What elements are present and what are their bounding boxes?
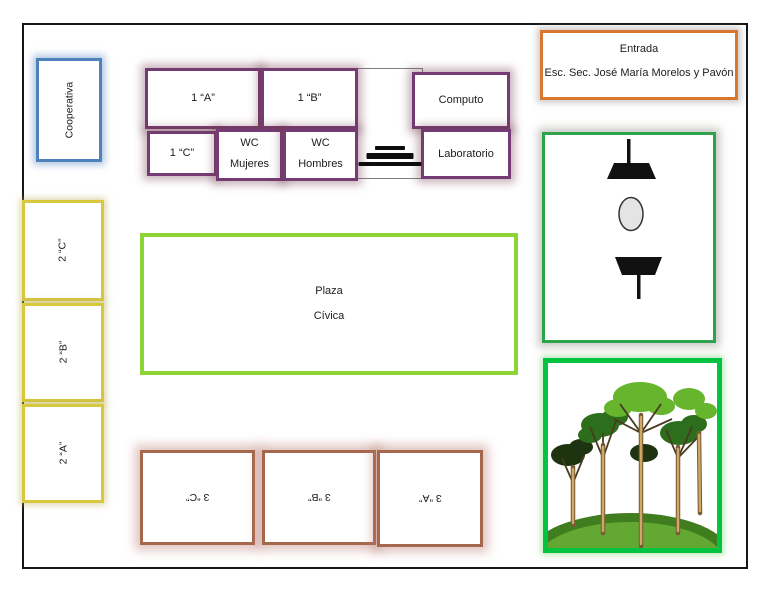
plaza-civica-box: Plaza Cívica [140, 233, 518, 375]
classroom-3a-box: 3 “A” [377, 450, 483, 547]
classroom-1c-box: 1 “C” [147, 131, 217, 176]
stairs-step-top [375, 146, 405, 150]
classroom-2c-box: 2 “C” [22, 200, 104, 301]
computo-label: Computo [439, 94, 484, 107]
wc-mujeres-line2: Mujeres [230, 158, 269, 171]
garden-box [543, 358, 722, 553]
classroom-1b-label: 1 “B” [298, 92, 322, 105]
stairs-icon [357, 143, 423, 171]
laboratorio-label: Laboratorio [438, 148, 494, 161]
stairs-step-bottom [359, 162, 422, 166]
classroom-1c-label: 1 “C” [170, 147, 194, 160]
entrance-box: Entrada Esc. Sec. José María Morelos y P… [540, 30, 738, 100]
classroom-3a-label: 3 “A” [419, 492, 442, 504]
laboratorio-box: Laboratorio [421, 129, 511, 179]
courtyard-shapes [545, 135, 713, 340]
classroom-1b-box: 1 “B” [261, 68, 358, 129]
bench-bottom-icon [615, 257, 662, 275]
oval-table-icon [619, 198, 643, 231]
classroom-2c-label: 2 “C” [57, 239, 69, 262]
classroom-3c-box: 3 “C” [140, 450, 255, 545]
courtyard-box [542, 132, 716, 343]
classroom-2b-box: 2 “B” [22, 303, 104, 402]
trees-illustration [548, 363, 717, 548]
classroom-2a-box: 2 “A” [22, 404, 104, 503]
wc-hombres-line1: WC [311, 137, 329, 150]
school-name-label: Esc. Sec. José María Morelos y Pavón [545, 67, 734, 80]
stairs-step-middle [367, 153, 414, 159]
classroom-3c-label: 3 “C” [186, 491, 209, 503]
plaza-label-line2: Cívica [314, 310, 345, 323]
classroom-1a-box: 1 “A” [145, 68, 261, 129]
wc-mujeres-line1: WC [240, 137, 258, 150]
classroom-2a-label: 2 “A” [57, 442, 69, 465]
cooperativa-label: Cooperativa [63, 82, 75, 139]
cooperativa-box: Cooperativa [36, 58, 102, 162]
wc-hombres-box: WC Hombres [283, 129, 358, 181]
classroom-3b-label: 3 “B” [308, 491, 331, 503]
plaza-label-line1: Plaza [315, 285, 343, 298]
classroom-3b-box: 3 “B” [262, 450, 376, 545]
bench-top-icon [627, 139, 631, 164]
computo-box: Computo [412, 72, 510, 129]
school-map-slide: Entrada Esc. Sec. José María Morelos y P… [0, 0, 768, 594]
entrance-label: Entrada [620, 43, 659, 56]
classroom-1a-label: 1 “A” [191, 92, 215, 105]
classroom-2b-label: 2 “B” [57, 341, 69, 364]
wc-mujeres-box: WC Mujeres [216, 129, 283, 181]
wc-hombres-line2: Hombres [298, 158, 343, 171]
